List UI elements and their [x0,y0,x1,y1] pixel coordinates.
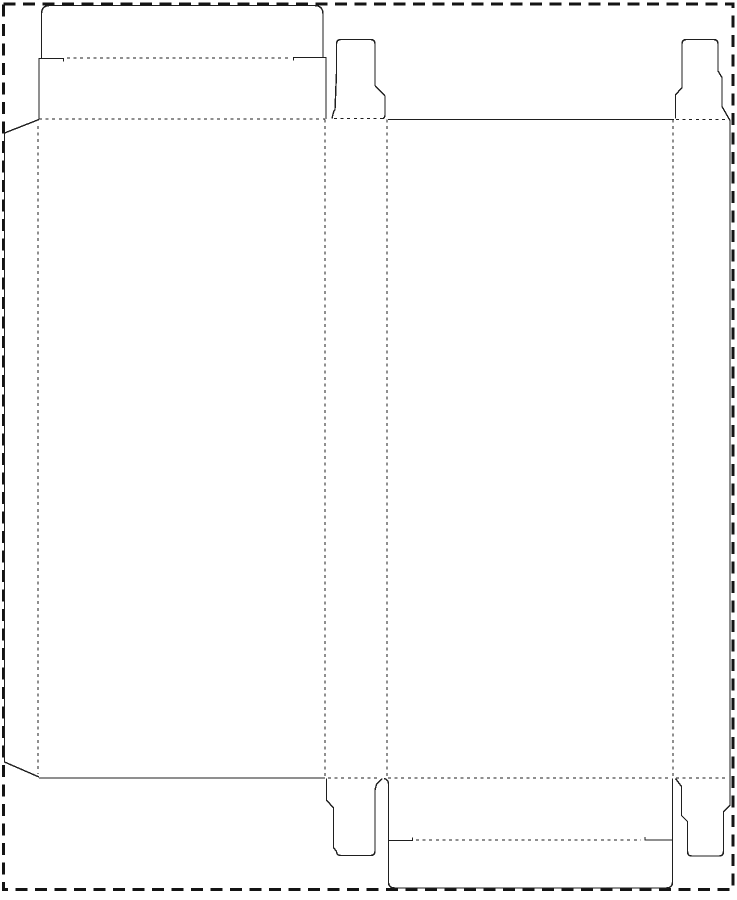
glue-flap-outline [5,120,40,778]
bottom-flap-left-slit [389,838,413,841]
dieline-page [0,0,737,900]
dust-tab-top-middle [332,40,385,119]
dieline-svg [0,0,737,900]
lid-left-edge-with-slit [39,59,64,120]
sheet-border [4,4,734,890]
bottom-tuck-flap-outline [384,779,673,889]
lid-tuck-flap-outline [42,6,324,59]
lid-right-edge-with-slit [294,58,327,120]
bottom-flap-right-slit [645,837,673,840]
dust-tab-top-right-and-right-edge-and-dust-tab-bottom-right [676,40,731,857]
dust-tab-bottom-middle [327,779,383,856]
